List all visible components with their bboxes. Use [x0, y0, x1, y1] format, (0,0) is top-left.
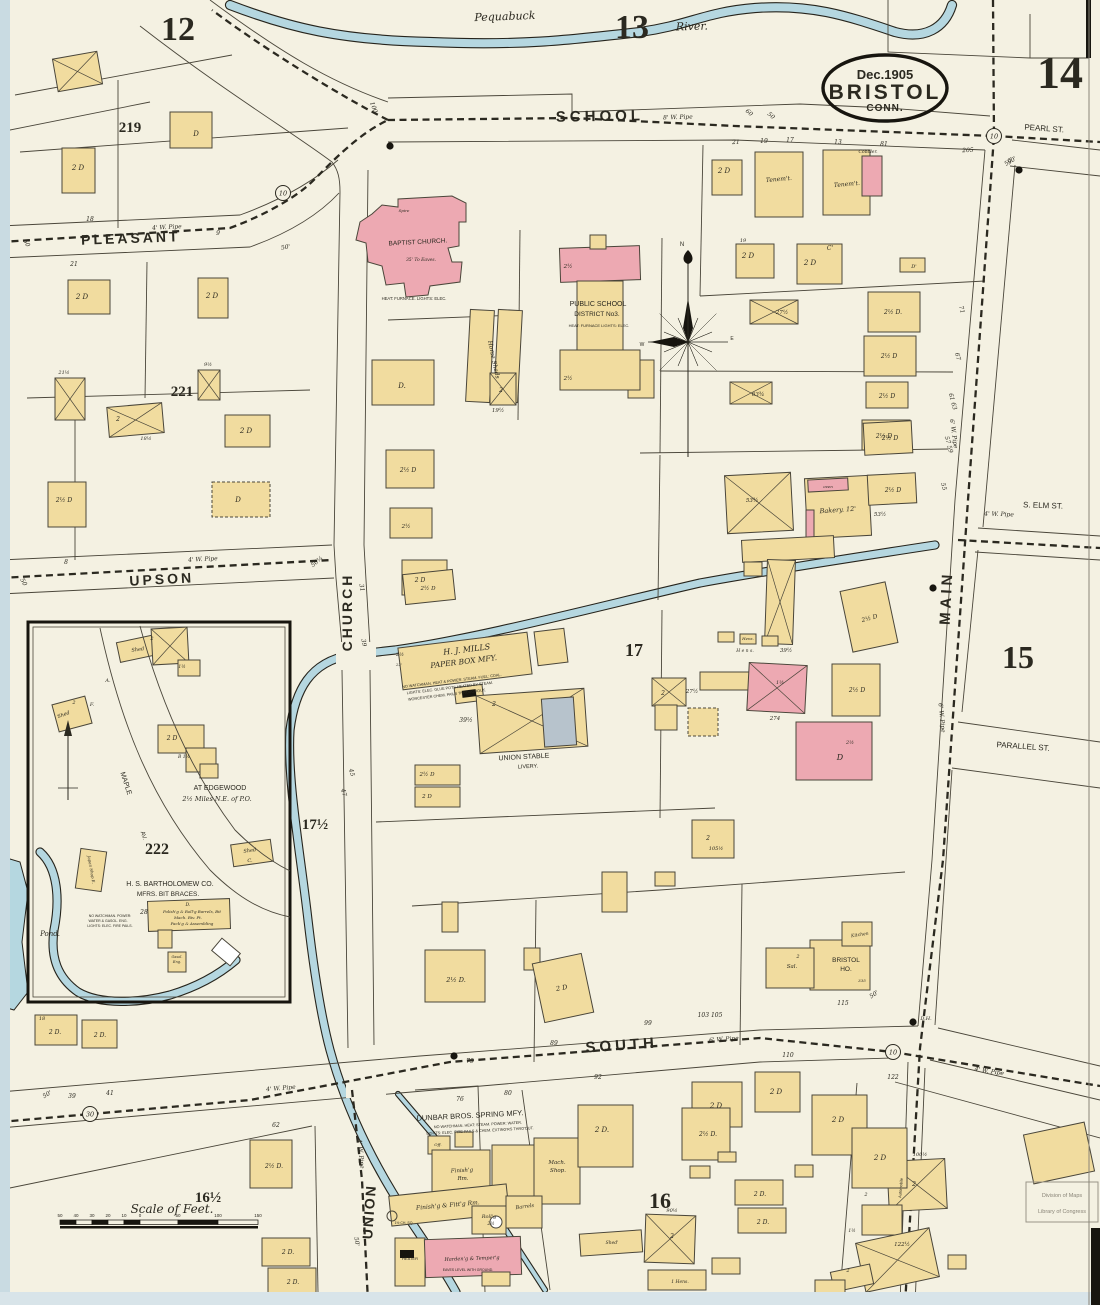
- building: [747, 663, 807, 714]
- building: [541, 697, 576, 747]
- building: [52, 51, 102, 91]
- map-label: EAVES LEVEL WITH GROUND.: [443, 1268, 494, 1272]
- map-label: 80: [504, 1090, 512, 1097]
- map-label: 2½ D: [55, 497, 73, 504]
- map-label: 2 D: [831, 1116, 845, 1124]
- hydrant-dot: [450, 1052, 457, 1059]
- map-label: 2 D: [421, 794, 432, 800]
- building: [506, 1196, 542, 1228]
- building: [690, 1166, 710, 1178]
- building: [442, 902, 458, 932]
- map-label: 27½: [685, 688, 698, 695]
- frame-building: [718, 1152, 736, 1162]
- map-label: 18: [86, 216, 94, 223]
- frame-building: [690, 1166, 710, 1178]
- map-label: Gasol.: [171, 955, 182, 959]
- map-label: 79: [466, 1058, 474, 1065]
- map-label: 2½ D: [884, 487, 902, 494]
- map-label: A.: [104, 678, 111, 684]
- map-label: Hens.: [741, 636, 754, 641]
- building: [862, 156, 882, 196]
- map-label: 90½: [666, 1207, 677, 1214]
- map-label: DISTRICT No3.: [574, 311, 620, 318]
- map-label: Rm.: [456, 1176, 468, 1182]
- map-label: H. S. BARTHOLOMEW CO.: [126, 881, 213, 888]
- map-label: Eng.: [172, 960, 181, 964]
- map-label: 2 D: [741, 252, 755, 260]
- map-label: SCHOOL: [556, 107, 644, 126]
- scale-bar-segment: [108, 1220, 124, 1225]
- stamp-date: Dec.1905: [857, 67, 913, 82]
- map-label: 222: [145, 841, 169, 858]
- loc-stamp-line1: Division of Maps: [1042, 1193, 1083, 1199]
- sanborn-map-sheet: NWE10101030 121314151616½1717½219221222S…: [0, 0, 1100, 1305]
- hydrant-dot: [909, 1018, 916, 1025]
- frame-building: [795, 1165, 813, 1177]
- building: [652, 678, 686, 706]
- building: [736, 244, 774, 278]
- compass-cardinal-letter: W: [640, 342, 645, 348]
- scale-tick-label: 10: [121, 1213, 127, 1218]
- map-label: 1½ CH. SQ.: [395, 1221, 414, 1225]
- map-label: 2 D: [75, 293, 89, 301]
- map-label: Cobbler.: [858, 149, 878, 155]
- map-label: 205: [961, 147, 974, 154]
- map-label: 122½: [894, 1241, 910, 1248]
- building: [755, 152, 803, 217]
- map-label: D: [836, 753, 844, 762]
- building: [795, 1165, 813, 1177]
- building: [68, 280, 110, 314]
- map-label: Mach.: [547, 1160, 566, 1166]
- map-label: 335: [858, 978, 866, 983]
- bottom-scan-edge: [0, 1292, 1100, 1305]
- scale-bar-segment: [76, 1220, 92, 1225]
- map-label: 39½: [780, 647, 792, 654]
- map-label: 2: [863, 1192, 867, 1198]
- map-label: 19: [740, 238, 747, 244]
- left-scan-edge: [0, 0, 10, 1305]
- map-label: Sal.: [787, 964, 798, 970]
- map-label: D.: [397, 382, 406, 390]
- map-label: 2½ D.: [698, 1131, 717, 1138]
- map-label: River.: [675, 19, 709, 33]
- building: [534, 628, 568, 665]
- map-label: H e n s.: [735, 648, 754, 654]
- map-label: 2 D: [166, 735, 178, 742]
- map-label: 53½: [874, 511, 886, 518]
- map-label: 2 D.: [753, 1191, 766, 1198]
- map-label: 2 D.: [594, 1126, 609, 1134]
- map-label: Finish'g: [450, 1167, 474, 1174]
- frame-building: [560, 350, 640, 390]
- map-label: 2½ D: [419, 771, 436, 778]
- frame-building: [578, 1105, 633, 1167]
- map-label: 274: [769, 716, 781, 722]
- map-label: 103 105: [698, 1012, 723, 1019]
- map-label: CHURCH: [339, 573, 355, 652]
- brick-building: [796, 722, 872, 780]
- map-label: Off.: [434, 1142, 441, 1147]
- frame-building: [692, 820, 734, 858]
- building: [158, 930, 172, 948]
- map-label: 41: [105, 1090, 114, 1097]
- frame-building: [744, 562, 762, 576]
- map-label: 89: [550, 1040, 558, 1047]
- map-label: 2½: [486, 1220, 494, 1227]
- map-label: 2: [795, 954, 799, 960]
- map-label: Roll'g: [481, 1214, 497, 1220]
- building: [482, 1272, 510, 1286]
- map-label: UPSON: [129, 569, 195, 588]
- building: [744, 562, 762, 576]
- map-label: 14: [1037, 47, 1083, 98]
- map-label: Shop.: [550, 1168, 566, 1174]
- map-label: HO.: [840, 966, 852, 973]
- frame-building: [442, 902, 458, 932]
- map-label: 2 D.: [756, 1219, 769, 1226]
- scale-bar-segment: [178, 1220, 218, 1225]
- frame-building: [395, 1238, 425, 1286]
- map-label: oven: [823, 484, 833, 489]
- map-label: 122: [887, 1074, 899, 1081]
- frame-building: [590, 235, 606, 249]
- map-label: 92: [594, 1074, 602, 1081]
- map-label: 99: [644, 1020, 652, 1027]
- map-label: D.: [185, 902, 191, 908]
- frame-building: [655, 872, 675, 886]
- scale-bar-segment: [140, 1220, 178, 1225]
- map-label: 2 D: [873, 1154, 887, 1162]
- scale-tick-label: 100: [214, 1213, 222, 1218]
- building: [862, 1205, 902, 1235]
- map-label: 2 D.: [93, 1032, 106, 1039]
- bottom-right-black-edge: [1091, 1228, 1100, 1305]
- scale-bar-segment: [92, 1220, 108, 1225]
- building: [796, 722, 872, 780]
- scale-title: Scale of Feet.: [131, 1202, 214, 1216]
- frame-building: [762, 636, 778, 646]
- map-label: 63¾: [752, 391, 764, 398]
- frame-building: [48, 482, 86, 527]
- map-label: 2: [115, 416, 120, 423]
- scale-bar-segment: [60, 1220, 76, 1225]
- map-label: F.: [89, 702, 95, 708]
- frame-building: [541, 697, 576, 747]
- building: [725, 472, 794, 533]
- map-label: 2 D: [205, 292, 219, 300]
- map-canvas: NWE10101030 121314151616½1717½219221222S…: [0, 0, 1100, 1305]
- map-label: 17: [786, 137, 794, 144]
- map-label: 81: [880, 141, 888, 148]
- map-label: 17½: [302, 817, 328, 833]
- building: [712, 1258, 740, 1274]
- map-label: AT EDGEWOOD: [194, 785, 247, 792]
- building: [212, 482, 270, 517]
- frame-building: [212, 482, 270, 517]
- map-label: 21½: [57, 369, 69, 376]
- building: [806, 510, 814, 538]
- building: [750, 300, 798, 324]
- frame-building: [158, 930, 172, 948]
- compass-cardinal-letter: N: [680, 242, 684, 248]
- map-label: 2: [911, 1181, 916, 1188]
- map-label: 19: [760, 138, 768, 145]
- map-label: 219: [119, 120, 142, 136]
- map-label: 2 D: [709, 1102, 723, 1110]
- frame-building: [506, 1196, 542, 1228]
- map-label: 2 D.: [48, 1029, 61, 1036]
- building: [762, 636, 778, 646]
- map-label: 2½: [401, 523, 411, 530]
- map-label: 2 D: [717, 167, 731, 175]
- map-label: Pond.: [39, 930, 60, 938]
- map-label: 19½: [492, 407, 504, 414]
- building: [151, 627, 189, 665]
- map-label: Pequabuck: [473, 9, 536, 24]
- map-label: 2 D: [71, 164, 85, 172]
- map-label: 2 D: [414, 577, 426, 584]
- building: [692, 820, 734, 858]
- map-label: Polish'g & Roll'g Barrels, Bit: [162, 909, 221, 914]
- map-label: 2: [705, 835, 710, 842]
- map-label: 2½ D: [399, 467, 417, 474]
- map-label: LIGHTS: ELEC. FIRE PAILS.: [87, 924, 132, 928]
- building: [765, 560, 796, 645]
- building: [741, 536, 834, 563]
- map-label: BRISTOL: [832, 957, 860, 964]
- map-label: 39: [68, 1093, 76, 1100]
- map-label: 28: [139, 909, 148, 916]
- map-label: 2: [498, 387, 503, 394]
- brick-building: [862, 156, 882, 196]
- map-label: 18: [39, 1016, 45, 1022]
- building: [170, 112, 212, 148]
- frame-building: [862, 1205, 902, 1235]
- map-label: C': [827, 245, 834, 252]
- frame-building: [482, 1272, 510, 1286]
- map-label: 2½ D: [420, 585, 437, 592]
- scale-tick-label: 150: [254, 1213, 262, 1218]
- building: [390, 508, 432, 538]
- building: [590, 235, 606, 249]
- map-label: MAIN: [937, 570, 957, 625]
- scale-tick-label: 50: [57, 1213, 63, 1218]
- frame-building: [534, 628, 568, 665]
- map-label: Spire: [399, 208, 410, 213]
- map-label: 115: [837, 1000, 849, 1007]
- building: [395, 1238, 425, 1286]
- brick-building: [806, 510, 814, 538]
- map-label: LIVERY.: [518, 763, 539, 770]
- map-label: 27½: [775, 309, 788, 316]
- map-label: 8: [64, 559, 68, 566]
- map-label: HEATER: [402, 1256, 418, 1261]
- map-label: 105½: [709, 845, 724, 852]
- scale-bar-segment: [124, 1220, 140, 1225]
- map-label: 2½ D: [881, 435, 899, 442]
- map-label: D.H.: [919, 1016, 932, 1022]
- frame-building: [741, 536, 834, 563]
- map-label: 13: [615, 9, 649, 46]
- circled-street-width-value: 10: [279, 189, 287, 197]
- frame-building: [700, 672, 755, 690]
- hydrant-dot: [386, 142, 393, 149]
- map-label: B 1½: [177, 753, 190, 760]
- scale-tick-label: 40: [73, 1213, 79, 1218]
- building: [718, 632, 734, 642]
- map-label: 2½ D: [848, 687, 866, 694]
- building: [560, 350, 640, 390]
- frame-building: [712, 160, 742, 195]
- map-label: 9: [216, 230, 220, 237]
- map-label: 221: [171, 384, 194, 400]
- map-label: 2: [669, 1233, 674, 1240]
- map-label: 2: [149, 636, 153, 642]
- loc-stamp-line2: Library of Congress: [1038, 1209, 1086, 1215]
- building: [718, 1152, 736, 1162]
- frame-building: [68, 280, 110, 314]
- stamp-state: CONN.: [866, 103, 903, 114]
- map-label: 2½ D: [878, 393, 896, 400]
- frame-building: [755, 152, 803, 217]
- frame-building: [170, 112, 212, 148]
- map-label: 22': [395, 662, 402, 667]
- map-label: 21: [731, 139, 740, 146]
- map-label: 2: [71, 700, 75, 706]
- building: [655, 872, 675, 886]
- hydrant-dot: [929, 584, 936, 591]
- scale-tick-label: 30: [89, 1213, 95, 1218]
- map-label: HEAT: FURNACE LIGHTS: ELEC.: [569, 323, 630, 328]
- map-label: 2: [491, 701, 496, 708]
- map-label: 2½ D.: [445, 976, 466, 984]
- map-label: 2½ D: [880, 353, 898, 360]
- map-label: 12: [161, 11, 195, 48]
- building: [712, 160, 742, 195]
- map-label: WATER & GASOL. ENG.: [88, 919, 127, 923]
- map-label: 2½ D.: [264, 1163, 283, 1170]
- map-label: 2: [845, 1268, 849, 1274]
- frame-building: [688, 708, 718, 736]
- map-label: 15: [1002, 639, 1034, 675]
- building: [948, 1255, 966, 1269]
- map-label: D: [192, 130, 199, 138]
- map-label: NO WATCHMAN. POWER:: [89, 914, 132, 918]
- frame-building: [390, 508, 432, 538]
- map-label: Pack'g & Assembling: [170, 921, 214, 926]
- map-label: 53¾: [746, 497, 758, 504]
- map-label: S. ELM ST.: [1023, 500, 1063, 510]
- map-label: Shed': [606, 1240, 619, 1246]
- map-label: 31: [357, 583, 365, 592]
- building: [815, 1280, 845, 1294]
- frame-building: [712, 1258, 740, 1274]
- map-label: 9½: [204, 361, 212, 368]
- building: [48, 482, 86, 527]
- map-label: Mach. Riv. Pt.: [173, 915, 202, 920]
- frame-building: [948, 1255, 966, 1269]
- map-label: 2 D.: [286, 1279, 299, 1286]
- map-label: D': [910, 264, 916, 270]
- map-label: 2½ D.: [883, 309, 902, 316]
- scale-tick-label: 50: [175, 1213, 181, 1218]
- map-label: 62: [272, 1122, 280, 1129]
- map-label: 21: [69, 261, 78, 268]
- map-label: 17: [625, 640, 643, 660]
- map-label: 2 D: [239, 427, 253, 435]
- hydrant-dot: [1015, 166, 1022, 173]
- frame-building: [736, 244, 774, 278]
- map-label: 18½: [140, 435, 151, 442]
- map-label: 100½: [913, 1151, 928, 1158]
- map-label: 2 D.: [281, 1249, 294, 1256]
- map-label: 2: [660, 690, 665, 697]
- building: [200, 764, 218, 778]
- building: [655, 705, 677, 730]
- map-label: 2½: [395, 651, 404, 658]
- map-label: 2½: [845, 739, 854, 746]
- map-label: 76: [456, 1096, 464, 1103]
- map-label: MFRS. BIT BRACES.: [137, 891, 200, 898]
- map-label: PUBLIC SCHOOL: [570, 301, 627, 308]
- map-label: 1½: [178, 663, 185, 670]
- building: [688, 708, 718, 736]
- frame-building: [815, 1280, 845, 1294]
- map-label: 2 D: [803, 259, 817, 267]
- scale-bar-segment: [218, 1220, 258, 1225]
- building: [198, 370, 220, 400]
- map-label: 1 Hens.: [671, 1279, 689, 1285]
- scale-tick-label: 20: [105, 1213, 111, 1218]
- stamp-city: BRISTOL: [829, 81, 942, 104]
- circled-street-width-value: 30: [86, 1110, 94, 1118]
- map-label: 4' W. Pipe: [983, 510, 1014, 518]
- map-label: 2½: [563, 375, 573, 382]
- frame-building: [655, 705, 677, 730]
- frame-building: [455, 1132, 473, 1147]
- map-label: 110: [782, 1052, 794, 1059]
- map-label: 2½ Miles N.E. of P.O.: [181, 795, 251, 803]
- map-label: 35' To Eaves.: [406, 257, 437, 263]
- frame-building: [718, 632, 734, 642]
- map-label: 1½: [848, 1227, 855, 1234]
- map-label: D: [234, 496, 241, 504]
- building: [55, 378, 85, 420]
- map-label: 2 D: [769, 1088, 783, 1096]
- circled-street-width-value: 10: [990, 132, 998, 140]
- building: [700, 672, 755, 690]
- building: [602, 872, 627, 912]
- map-label: C.: [247, 858, 253, 864]
- building: [455, 1132, 473, 1147]
- map-label: HEAT: FURNACE. LIGHTS: ELEC.: [382, 296, 447, 301]
- scale-bar-base: [60, 1226, 258, 1229]
- map-label: 39½: [459, 717, 473, 724]
- map-label: 13: [834, 139, 842, 146]
- building: [578, 1105, 633, 1167]
- map-label: 1½: [776, 679, 784, 686]
- map-label: 2½: [563, 263, 573, 270]
- frame-building: [602, 872, 627, 912]
- map-label: 39: [359, 638, 367, 647]
- map-label: 8' W. Pipe: [663, 113, 693, 121]
- circled-street-width-value: 10: [889, 1048, 897, 1056]
- frame-building: [200, 764, 218, 778]
